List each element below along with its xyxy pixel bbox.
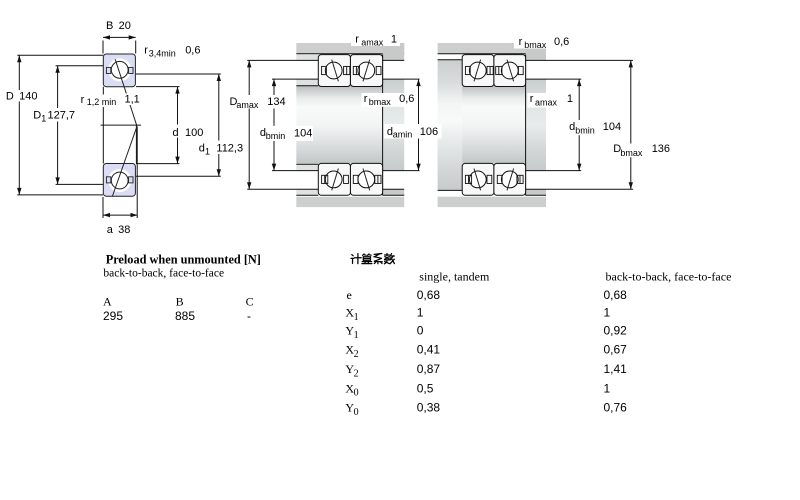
svg-text:127,7: 127,7 (48, 110, 76, 122)
svg-text:0,38: 0,38 (417, 401, 441, 415)
svg-text:0,41: 0,41 (417, 343, 441, 357)
svg-text:1,1: 1,1 (125, 94, 140, 106)
svg-text:amax: amax (535, 98, 558, 108)
svg-text:0: 0 (417, 324, 424, 338)
svg-text:B: B (176, 295, 184, 309)
svg-text:r: r (519, 36, 523, 48)
svg-text:1,41: 1,41 (604, 362, 628, 376)
svg-text:bmax: bmax (524, 40, 547, 50)
svg-text:100: 100 (185, 127, 203, 139)
svg-text:e: e (347, 288, 352, 302)
svg-text:r: r (355, 33, 359, 45)
svg-text:-: - (247, 309, 251, 323)
svg-text:bmin: bmin (575, 126, 595, 136)
svg-text:0,6: 0,6 (185, 44, 200, 56)
svg-text:295: 295 (103, 309, 123, 323)
svg-text:1: 1 (354, 330, 359, 341)
svg-text:1: 1 (205, 146, 210, 156)
svg-text:0,6: 0,6 (399, 93, 414, 105)
svg-text:134: 134 (267, 96, 285, 108)
svg-text:r: r (144, 44, 148, 56)
svg-text:amax: amax (361, 37, 384, 47)
svg-text:0: 0 (354, 407, 359, 418)
svg-text:0,67: 0,67 (604, 343, 628, 357)
svg-text:D: D (33, 110, 41, 122)
svg-text:885: 885 (175, 309, 195, 323)
svg-text:r: r (530, 93, 534, 105)
svg-text:1: 1 (417, 306, 424, 320)
svg-text:112,3: 112,3 (216, 142, 243, 154)
svg-text:3,4min: 3,4min (149, 49, 176, 59)
svg-text:0,68: 0,68 (604, 288, 628, 302)
svg-text:r: r (81, 94, 85, 106)
svg-text:1: 1 (604, 381, 611, 395)
svg-text:2: 2 (354, 368, 359, 379)
svg-text:1: 1 (604, 306, 611, 320)
svg-text:0,87: 0,87 (417, 362, 441, 376)
svg-text:A: A (103, 295, 112, 309)
svg-text:0,68: 0,68 (417, 288, 441, 302)
svg-text:D 140: D 140 (6, 90, 38, 102)
svg-text:0,92: 0,92 (604, 324, 628, 338)
svg-text:B 20: B 20 (106, 20, 131, 32)
svg-text:Preload when unmounted [N]: Preload when unmounted [N] (106, 252, 261, 266)
svg-text:back-to-back, face-to-face: back-to-back, face-to-face (606, 270, 732, 284)
svg-text:bmax: bmax (620, 148, 643, 158)
svg-text:d: d (199, 142, 205, 154)
svg-text:1: 1 (391, 33, 397, 45)
svg-text:0: 0 (354, 388, 359, 399)
svg-text:2: 2 (354, 349, 359, 360)
svg-text:d: d (569, 121, 575, 133)
svg-text:104: 104 (294, 127, 312, 139)
svg-text:amin: amin (393, 130, 413, 140)
svg-text:single, tandem: single, tandem (419, 270, 490, 284)
svg-text:back-to-back, face-to-face: back-to-back, face-to-face (103, 268, 224, 280)
svg-text:r: r (364, 93, 368, 105)
svg-text:C: C (246, 295, 254, 309)
svg-text:1,2 min: 1,2 min (87, 97, 117, 107)
svg-text:a 38: a 38 (107, 224, 131, 236)
svg-text:1: 1 (41, 114, 46, 124)
svg-text:1: 1 (567, 93, 573, 105)
svg-text:104: 104 (603, 121, 621, 133)
svg-text:0,6: 0,6 (554, 36, 569, 48)
svg-text:bmax: bmax (369, 97, 392, 107)
svg-text:136: 136 (652, 143, 670, 155)
svg-text:amax: amax (236, 100, 259, 110)
svg-text:106: 106 (420, 126, 438, 138)
svg-text:bmin: bmin (266, 131, 286, 141)
svg-text:1: 1 (354, 312, 359, 323)
svg-text:0,76: 0,76 (604, 401, 628, 415)
svg-text:0,5: 0,5 (417, 381, 434, 395)
svg-text:d: d (173, 127, 179, 139)
